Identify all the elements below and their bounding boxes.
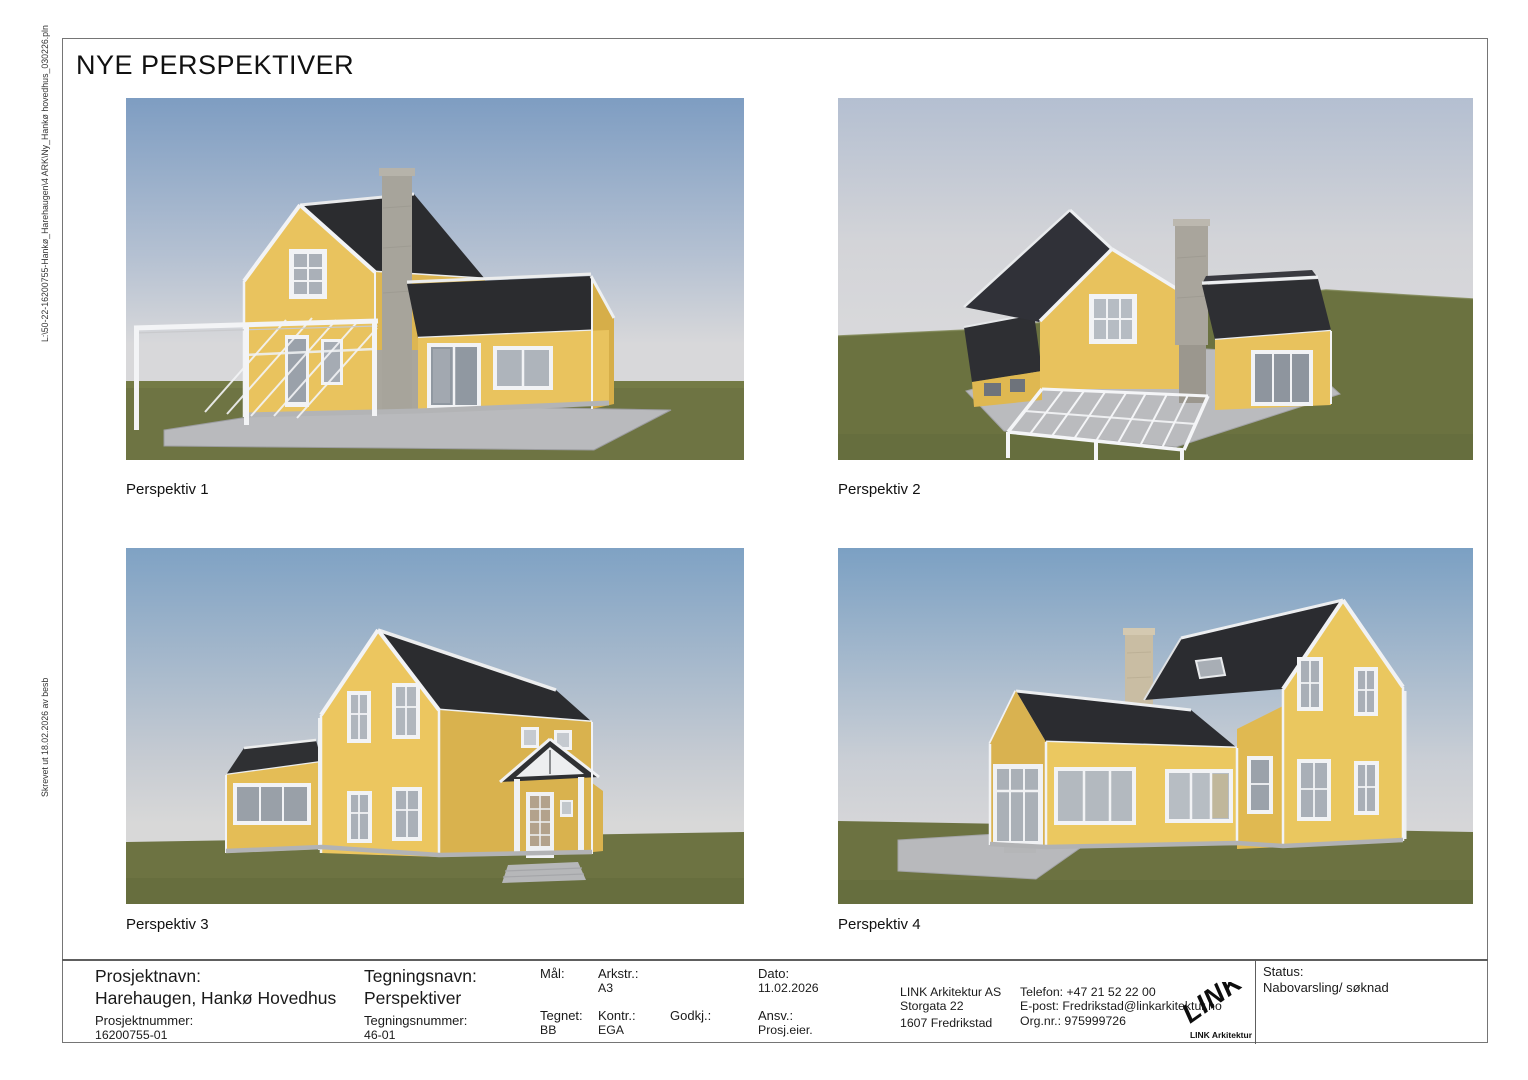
- perspective-4-render: [838, 548, 1473, 904]
- file-path-vertical-text: L:\50-22-16200755-Hankø_Harehaugen\4 ARK…: [40, 25, 50, 342]
- sheet-title: NYE PERSPEKTIVER: [76, 50, 354, 81]
- wing-window-wide: [493, 346, 553, 390]
- gable-upper-window: [289, 249, 327, 299]
- drawing-number-value: 46-01: [364, 1028, 395, 1042]
- date-label: Dato:: [758, 966, 789, 981]
- wing-roof: [407, 276, 609, 338]
- responsible-value: Prosj.eier.: [758, 1023, 813, 1037]
- company-name: LINK Arkitektur AS: [900, 985, 1001, 999]
- scale-label: Mål:: [540, 966, 565, 981]
- logo-text: LINK: [1183, 982, 1250, 1029]
- checked-by-label: Kontr.:: [598, 1008, 636, 1023]
- wing-window-2: [1165, 769, 1233, 823]
- company-postal: 1607 Fredrikstad: [900, 1016, 992, 1030]
- project-name-value: Harehaugen, Hankø Hovedhus: [95, 988, 336, 1009]
- status-value: Nabovarsling/ søknad: [1263, 980, 1389, 995]
- checked-by-value: EGA: [598, 1023, 624, 1037]
- company-org-number: Org.nr.: 975999726: [1020, 1014, 1126, 1028]
- wing-window-1: [1054, 767, 1136, 825]
- perspective-1-render: [126, 98, 744, 460]
- drawing-number-label: Tegningsnummer:: [364, 1013, 467, 1028]
- company-address: Storgata 22: [900, 999, 964, 1013]
- drawn-by-label: Tegnet:: [540, 1008, 583, 1023]
- perspective-4-label: Perspektiv 4: [838, 916, 921, 933]
- drawing-name-value: Perspektiver: [364, 988, 461, 1009]
- project-name-label: Prosjektnavn:: [95, 966, 201, 987]
- company-phone: Telefon: +47 21 52 22 00: [1020, 985, 1156, 999]
- perspective-3-label: Perspektiv 3: [126, 916, 209, 933]
- gable-window: [1089, 294, 1137, 344]
- wing-window-large: [427, 343, 481, 409]
- print-info-vertical-text: Skrevet ut 18.02.2026 av besb: [40, 678, 50, 797]
- format-value: A3: [598, 981, 613, 995]
- status-label: Status:: [1263, 964, 1303, 979]
- skylight: [1196, 658, 1225, 678]
- responsible-label: Ansv.:: [758, 1008, 793, 1023]
- drawn-by-value: BB: [540, 1023, 556, 1037]
- right-wing-windows: [1251, 350, 1313, 406]
- perspective-3-render: [126, 548, 744, 904]
- perspective-2-label: Perspektiv 2: [838, 481, 921, 498]
- project-number-label: Prosjektnummer:: [95, 1013, 193, 1028]
- project-number-value: 16200755-01: [95, 1028, 168, 1042]
- sunroom-doors: [993, 764, 1043, 853]
- logo-caption: LINK Arkitektur: [1190, 1030, 1253, 1040]
- logo-mark: LINK LINK Arkitektur: [1183, 982, 1259, 1040]
- porch-steps: [502, 862, 586, 883]
- perspective-2-render: [838, 98, 1473, 460]
- date-value: 11.02.2026: [758, 981, 819, 995]
- left-wing: [226, 740, 322, 853]
- drawing-name-label: Tegningsnavn:: [364, 966, 477, 987]
- drawing-sheet-page: NYE PERSPEKTIVER L:\50-22-16200755-Hankø…: [0, 0, 1528, 1080]
- link-arkitektur-logo: LINK LINK Arkitektur: [1183, 982, 1259, 1040]
- right-wing-roof: [1202, 279, 1331, 340]
- title-block-divider: [62, 959, 1488, 961]
- format-label: Arkstr.:: [598, 966, 638, 981]
- perspective-1-label: Perspektiv 1: [126, 481, 209, 498]
- approved-by-label: Godkj.:: [670, 1008, 711, 1023]
